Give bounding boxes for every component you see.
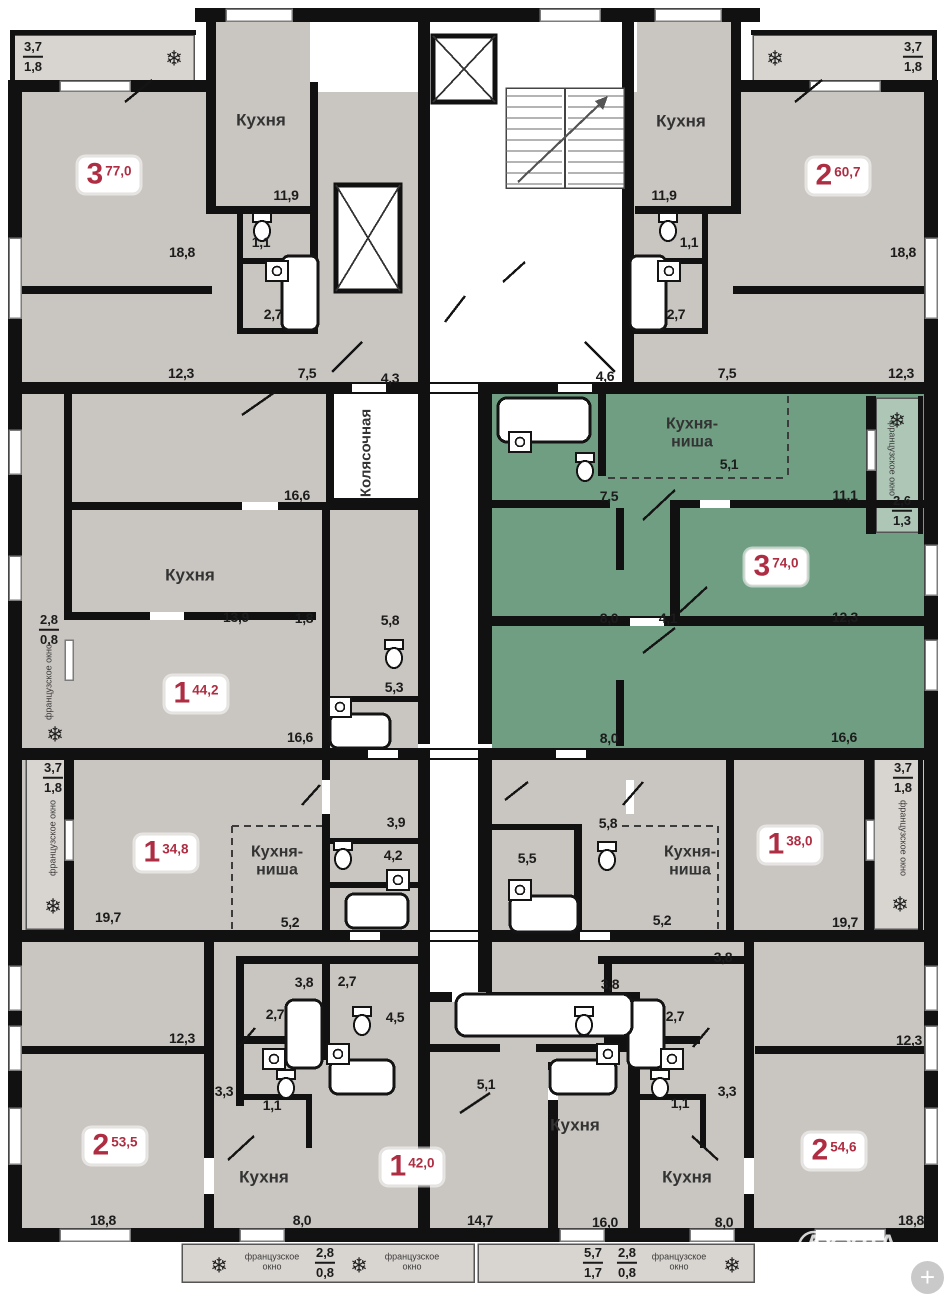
balcony-area-fraction: 2,80,8 xyxy=(315,1245,335,1282)
snowflake-icon: ❄ xyxy=(44,897,62,918)
dimension-label: 5,2 xyxy=(653,913,672,927)
room-label: Кухня xyxy=(662,1169,712,1186)
dimension-label: 2,7 xyxy=(338,974,357,988)
dimension-label: 16,0 xyxy=(592,1215,618,1229)
dimension-label: 5,1 xyxy=(477,1077,496,1091)
room-label: Кухня xyxy=(656,113,706,130)
dimension-label: 7,5 xyxy=(600,489,619,503)
dimension-label: 5,5 xyxy=(518,851,537,865)
dimension-label: 13,9 xyxy=(223,610,249,624)
dimension-label: 1,1 xyxy=(680,235,699,249)
apartment-badge-54: 254,6 xyxy=(803,1133,866,1170)
room-label-vertical: Колясочная xyxy=(359,409,374,497)
dimension-label: 1,1 xyxy=(252,235,271,249)
dimension-label: 16,6 xyxy=(831,730,857,744)
dimension-label: 1,1 xyxy=(671,1096,690,1110)
room-label: Кухня xyxy=(236,112,286,129)
room-label: Кухня-ниша xyxy=(664,844,716,881)
dimension-label: 4,1 xyxy=(659,611,678,625)
balcony-area-fraction: 2,80,8 xyxy=(39,612,59,649)
balcony-area-fraction: 5,71,7 xyxy=(583,1245,603,1282)
floor-plan: 3,71,8❄Кухня377,011,91,118,82,712,37,54,… xyxy=(0,0,947,1295)
apartment-badge-38: 138,0 xyxy=(759,827,822,864)
dimension-label: 12,3 xyxy=(832,610,858,624)
dimension-label: 11,9 xyxy=(273,188,298,202)
dimension-label: 2,7 xyxy=(666,1009,685,1023)
dimension-label: 7,5 xyxy=(298,366,317,380)
dimension-label: 5,2 xyxy=(281,915,300,929)
dimension-label: 12,3 xyxy=(168,366,194,380)
snowflake-icon: ❄ xyxy=(350,1256,368,1277)
dimension-label: 8,0 xyxy=(715,1215,734,1229)
apartment-badge-34: 134,8 xyxy=(135,835,198,872)
dimension-label: 3,8 xyxy=(601,977,620,991)
dimension-label: 2,7 xyxy=(667,307,686,321)
dimension-label: 11,9 xyxy=(651,188,676,202)
dimension-label: 4,6 xyxy=(596,369,615,383)
snowflake-icon: ❄ xyxy=(165,49,183,70)
label-layer: 3,71,8❄Кухня377,011,91,118,82,712,37,54,… xyxy=(0,0,947,1295)
dimension-label: 19,7 xyxy=(95,910,121,924)
french-window-label: французскоеокно xyxy=(237,1252,307,1273)
snowflake-icon: ❄ xyxy=(891,895,909,916)
dimension-label: 8,0 xyxy=(600,731,619,745)
snowflake-icon: ❄ xyxy=(723,1256,741,1277)
apartment-badge-74: 374,0 xyxy=(745,549,808,586)
apartment-badge-42: 142,0 xyxy=(381,1149,444,1186)
balcony-area-fraction: 2,61,3 xyxy=(892,493,912,530)
balcony-area-fraction: 3,71,8 xyxy=(893,760,913,797)
dimension-label: 1,8 xyxy=(295,611,314,625)
snowflake-icon: ❄ xyxy=(210,1256,228,1277)
dimension-label: 12,3 xyxy=(169,1031,195,1045)
dimension-label: 8,0 xyxy=(293,1213,312,1227)
dimension-label: 11,1 xyxy=(832,488,857,502)
dimension-label: 18,8 xyxy=(169,245,195,259)
dimension-label: 18,8 xyxy=(890,245,916,259)
french-window-label: французское окно xyxy=(49,800,58,876)
dimension-label: 3,3 xyxy=(215,1084,234,1098)
dimension-label: 18,8 xyxy=(898,1213,924,1227)
dimension-label: 2,7 xyxy=(264,307,283,321)
dimension-label: 5,8 xyxy=(599,816,618,830)
dimension-label: 4,3 xyxy=(381,371,400,385)
dimension-label: 3,8 xyxy=(714,950,733,964)
dimension-label: 14,7 xyxy=(467,1213,493,1227)
room-label: Кухня-ниша xyxy=(666,416,718,453)
balcony-area-fraction: 3,71,8 xyxy=(43,760,63,797)
french-window-label: французское окно xyxy=(899,800,908,876)
room-label: Кухня xyxy=(550,1117,600,1134)
dimension-label: 3,8 xyxy=(295,975,314,989)
apartment-badge-53: 253,5 xyxy=(84,1128,147,1165)
apartment-badge-60: 260,7 xyxy=(807,158,870,195)
dimension-label: 5,8 xyxy=(381,613,400,627)
french-window-label: французское окно xyxy=(888,420,897,496)
room-label: Кухня xyxy=(165,567,215,584)
dimension-label: 19,7 xyxy=(832,915,858,929)
room-label: Кухня xyxy=(239,1169,289,1186)
dimension-label: 3,9 xyxy=(387,815,406,829)
dimension-label: 8,0 xyxy=(600,611,619,625)
balcony-area-fraction: 2,80,8 xyxy=(617,1245,637,1282)
dimension-label: 5,1 xyxy=(720,457,739,471)
dimension-label: 16,6 xyxy=(284,488,310,502)
french-window-label: французскоеокно xyxy=(644,1252,714,1273)
dimension-label: 12,3 xyxy=(888,366,914,380)
dimension-label: 16,6 xyxy=(287,730,313,744)
room-label: Кухня-ниша xyxy=(251,844,303,881)
zoom-in-button[interactable]: + xyxy=(911,1261,944,1294)
dimension-label: 3,3 xyxy=(718,1084,737,1098)
watermark-akula: АКУЛА xyxy=(797,1230,899,1259)
balcony-area-fraction: 3,71,8 xyxy=(23,39,43,76)
dimension-label: 12,3 xyxy=(896,1033,922,1047)
apartment-badge-77: 377,0 xyxy=(78,157,141,194)
french-window-label: французскоеокно xyxy=(377,1252,447,1273)
dimension-label: 18,8 xyxy=(90,1213,116,1227)
dimension-label: 4,5 xyxy=(386,1010,405,1024)
snowflake-icon: ❄ xyxy=(766,49,784,70)
dimension-label: 2,7 xyxy=(266,1007,285,1021)
dimension-label: 1,1 xyxy=(263,1098,282,1112)
dimension-label: 4,2 xyxy=(384,848,403,862)
snowflake-icon: ❄ xyxy=(46,725,64,746)
french-window-label: французское окно xyxy=(45,644,54,720)
dimension-label: 7,5 xyxy=(718,366,737,380)
balcony-area-fraction: 3,71,8 xyxy=(903,39,923,76)
dimension-label: 5,3 xyxy=(385,680,404,694)
apartment-badge-44: 144,2 xyxy=(165,676,228,713)
